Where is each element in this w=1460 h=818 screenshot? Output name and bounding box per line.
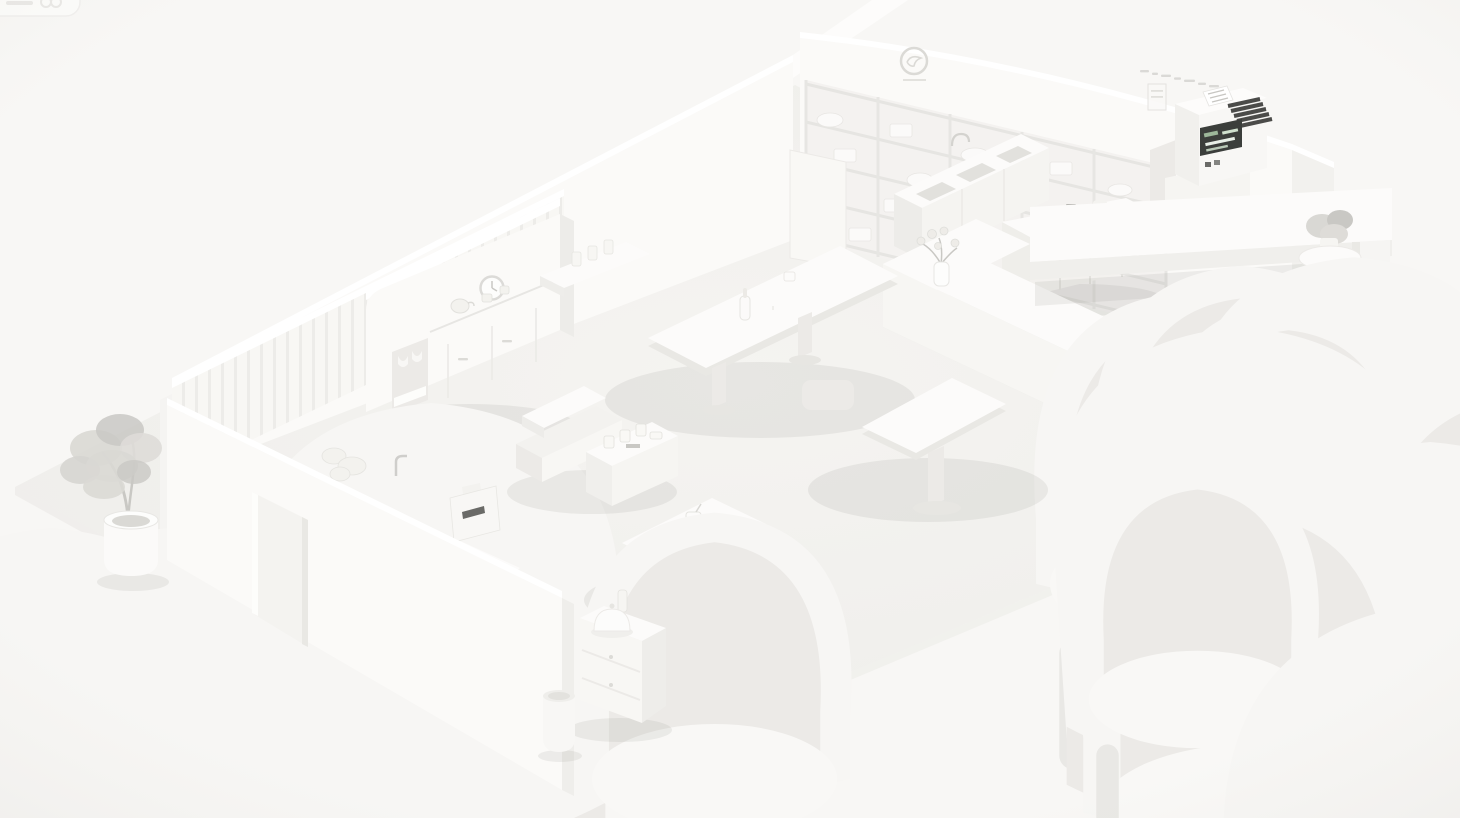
door-jamb-left: [252, 492, 258, 616]
espresso-machine-left: [1175, 104, 1199, 186]
table-vase: [740, 296, 750, 320]
long-table-base: [703, 405, 735, 415]
stand-product-dark: [626, 444, 640, 448]
overlay-card: cropped overlay card: [0, 0, 80, 16]
table-cup: [784, 272, 795, 281]
drawer-knob: [609, 655, 613, 659]
bin-mouth: [548, 692, 570, 700]
cafe-render: cropped overlay card floor platform back…: [0, 0, 1460, 818]
drawer-knob: [609, 683, 613, 687]
vase-body: [934, 262, 949, 286]
syrup-bottle: [618, 590, 627, 612]
overlay-card-dash-icon: [6, 1, 33, 5]
dome-knob: [610, 604, 615, 609]
machine-button: [1205, 162, 1211, 167]
machine-button: [1214, 160, 1220, 165]
long-table-leg: [798, 312, 812, 358]
cabinet-shadow: [568, 718, 672, 742]
table-vase-neck: [743, 288, 747, 298]
bench: [802, 380, 854, 410]
bin-body: [543, 696, 575, 752]
render-stage: cropped overlay card floor platform back…: [0, 0, 1460, 818]
long-table-base: [789, 355, 821, 365]
long-table-leg: [712, 362, 726, 408]
mid-table-leg: [928, 446, 944, 507]
mid-table-base: [913, 501, 961, 515]
plant-soil: [112, 515, 150, 527]
door-jamb-right: [302, 517, 308, 647]
